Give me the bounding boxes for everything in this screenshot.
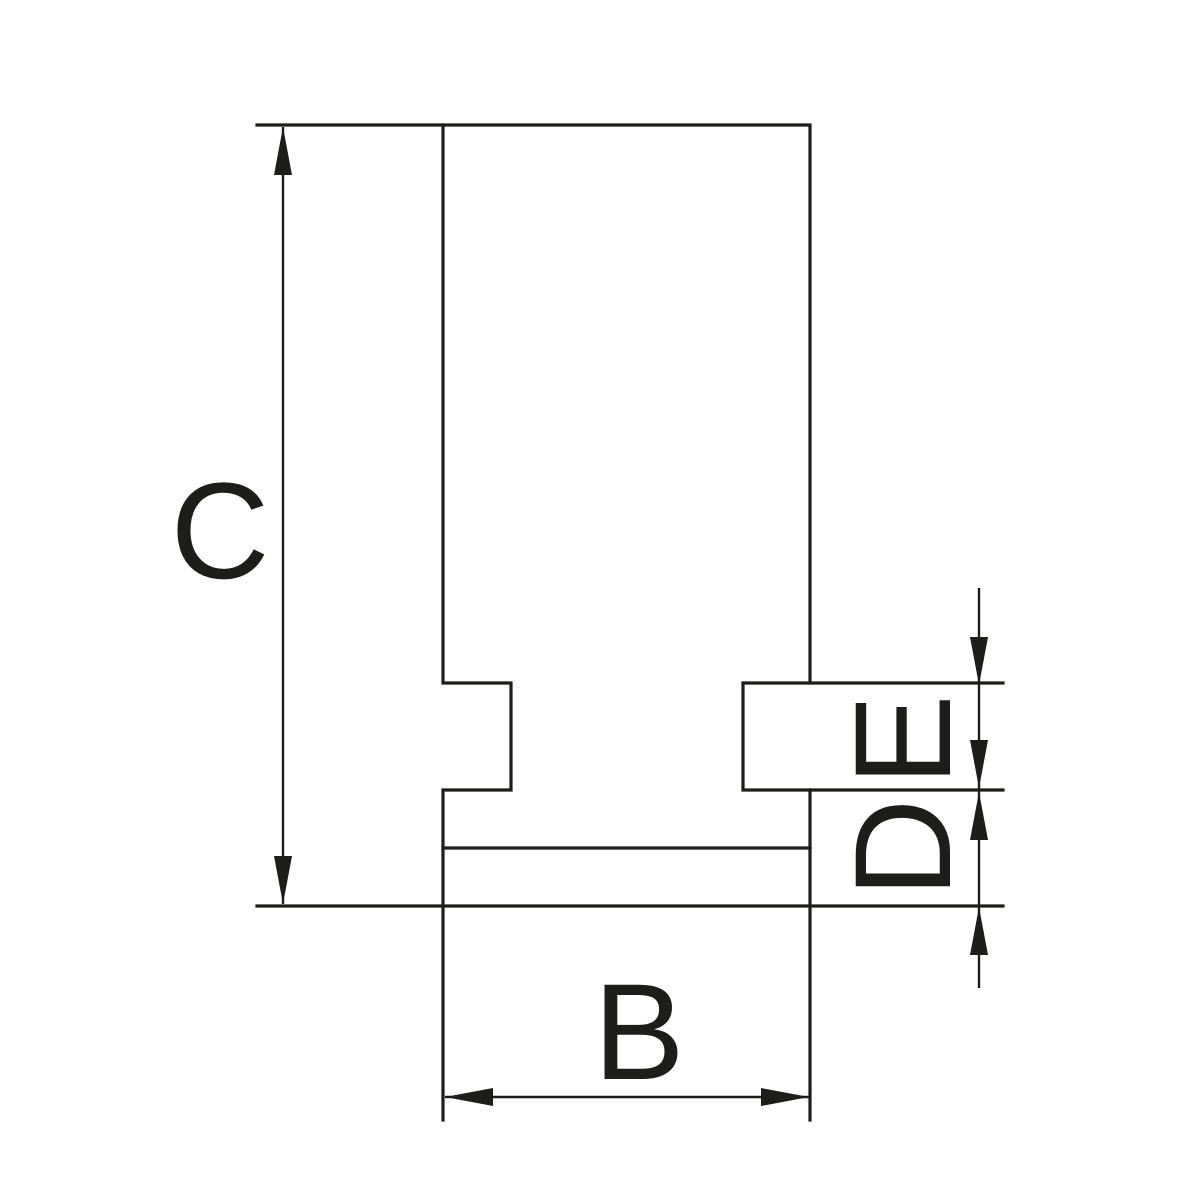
label-d: D [827, 799, 980, 898]
label-c: C [171, 455, 270, 608]
part-left-edge-with-notch [443, 125, 511, 1120]
dimension-c-group: C [171, 127, 292, 904]
dimension-b-group: B [445, 956, 809, 1109]
arrow-up-icon [970, 907, 988, 955]
drawing-canvas: C B E D [0, 0, 1200, 1200]
part-top-and-upper-right-edge [257, 125, 810, 683]
dimension-de-group: E D [827, 588, 988, 988]
technical-drawing-svg: C B E D [0, 0, 1200, 1200]
arrow-right-icon [761, 1088, 809, 1106]
label-b: B [593, 956, 684, 1109]
arrow-up-icon [274, 127, 292, 175]
arrow-down-icon [970, 637, 988, 685]
arrow-left-icon [445, 1088, 493, 1106]
arrow-down-icon [274, 856, 292, 904]
label-e: E [827, 694, 980, 785]
